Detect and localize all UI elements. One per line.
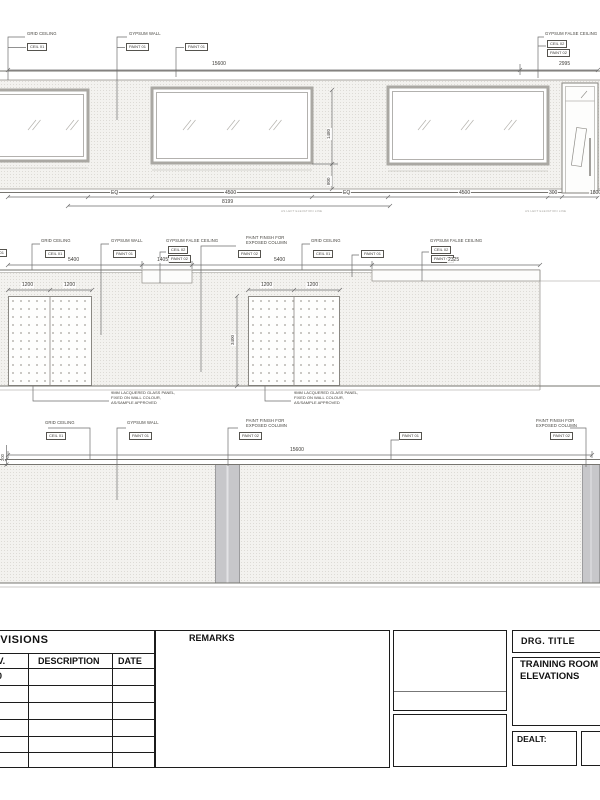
tag-paint-01: PAINT 01 [113, 250, 136, 258]
dim-panel-width: 1200 [63, 283, 76, 288]
tag-paint-01: PAINT 01 [185, 43, 208, 51]
stamp-box-lower [393, 714, 507, 767]
table-line [28, 653, 29, 768]
tag-ceil-01: CEIL 01 [27, 43, 47, 51]
label-grid-ceiling: GRID CEILING [27, 32, 57, 36]
dim-eq: EQ [110, 191, 119, 196]
tag-paint-01: PAINT 01 [399, 432, 422, 440]
tag-paint-01-clipped: PAINT 01 [0, 249, 7, 257]
remarks-title: REMARKS [189, 633, 235, 643]
table-line [394, 691, 506, 692]
drawing-title-line2: ELEVATIONS [520, 672, 579, 683]
tag-paint-01: PAINT 01 [129, 432, 152, 440]
dealt-label: DEALT: [517, 735, 547, 745]
tag-paint-01: PAINT 01 [126, 43, 149, 51]
label-gypsum-false-ceiling: GYPSUM FALSE CEILING [430, 239, 482, 243]
table-line [0, 685, 155, 686]
table-line [0, 736, 155, 737]
description-column-header: DESCRIPTION [38, 656, 100, 666]
dim-pier: 300 [548, 191, 558, 196]
label-gypsum-false-ceiling: GYPSUM FALSE CEILING [545, 32, 597, 36]
label-paint-finish-line2: EXPOSED COLUMN [246, 241, 287, 245]
label-paint-finish-line2: EXPOSED COLUMN [246, 424, 287, 428]
note-line: AS/SAMPLE APPROVED [294, 400, 358, 405]
tag-ceil-02: CEIL 02 [168, 246, 188, 254]
dim-total-width: 15600 [211, 62, 227, 67]
dim-bay3: 2325 [447, 258, 460, 263]
tag-ceil-02: CEIL 02 [547, 40, 567, 48]
tag-paint-02: PAINT 02 [239, 432, 262, 440]
tag-ceil-01: CEIL 01 [46, 432, 66, 440]
label-gypsum-false-ceiling: GYPSUM FALSE CEILING [166, 239, 218, 243]
label-gypsum-wall: GYPSUM WALL [111, 239, 143, 243]
tag-ceil-02: CEIL 02 [431, 246, 451, 254]
dim-bay: 4500 [458, 191, 471, 196]
remarks-box [155, 630, 390, 768]
dim-eq: EQ [342, 191, 351, 196]
dim-panel-width: 1200 [306, 283, 319, 288]
date-column-header: DATE [118, 656, 142, 666]
side-box [581, 731, 600, 766]
drg-title-label: DRG. TITLE [521, 636, 575, 646]
revisions-table [0, 630, 155, 768]
micro-caption: AS LEFT ELEVATION LINE [525, 210, 566, 213]
dim-bay1: 5400 [67, 258, 80, 263]
rev-column-header: REV. [0, 656, 5, 666]
label-paint-finish-line2: EXPOSED COLUMN [536, 424, 577, 428]
micro-caption: AS LEFT ELEVATION LINE [281, 210, 322, 213]
label-grid-ceiling: GRID CEILING [311, 239, 341, 243]
note-glass-panel-right: 9MM LACQUERED GLASS PANEL, FIXED ON WALL… [294, 390, 358, 406]
tag-ceil-01: CEIL 01 [45, 250, 65, 258]
tag-paint-02: PAINT 02 [168, 255, 191, 263]
dim-panel-width: 1200 [260, 283, 273, 288]
label-gypsum-wall: GYPSUM WALL [129, 32, 161, 36]
table-line [0, 752, 155, 753]
table-line [0, 668, 155, 669]
tag-ceil-01: CEIL 01 [313, 250, 333, 258]
note-glass-panel-left: 9MM LACQUERED GLASS PANEL, FIXED ON WALL… [111, 390, 175, 406]
dim-panel-width: 1200 [21, 283, 34, 288]
table-line [112, 653, 113, 768]
note-line: AS/SAMPLE APPROVED [111, 400, 175, 405]
revision-number: 0 [0, 671, 2, 681]
dim-bay2: 5400 [273, 258, 286, 263]
tag-paint-02: PAINT 02 [550, 432, 573, 440]
tag-paint-02: PAINT 02 [547, 49, 570, 57]
dim-total-width: 15600 [289, 448, 305, 453]
dim-subtotal: 8199 [221, 200, 234, 205]
dim-sill-height: 800 [327, 176, 332, 186]
dim-panel-height: 3400 [231, 334, 236, 346]
dim-window-height: 1480 [327, 128, 332, 140]
dim-ceiling-band: 200 [1, 453, 5, 462]
dim-bay: 4500 [224, 191, 237, 196]
label-grid-ceiling: GRID CEILING [45, 421, 75, 425]
label-gypsum-wall: GYPSUM WALL [127, 421, 159, 425]
dim-recess: 1405 [156, 258, 169, 263]
label-grid-ceiling: GRID CEILING [41, 239, 71, 243]
dim-door: 1800 [589, 191, 600, 196]
drawing-title-line1: TRAINING ROOM [520, 660, 598, 671]
stamp-box-upper [393, 630, 507, 711]
tag-paint-01: PAINT 01 [361, 250, 384, 258]
table-line [0, 719, 155, 720]
dim-right-end: 2995 [558, 62, 571, 67]
revisions-title: REVISIONS [0, 634, 48, 647]
tag-paint-02: PAINT 02 [238, 250, 261, 258]
table-line [0, 702, 155, 703]
table-line [0, 653, 155, 654]
drawing-sheet: GRID CEILING CEIL 01 GYPSUM WALL PAINT 0… [0, 0, 600, 800]
